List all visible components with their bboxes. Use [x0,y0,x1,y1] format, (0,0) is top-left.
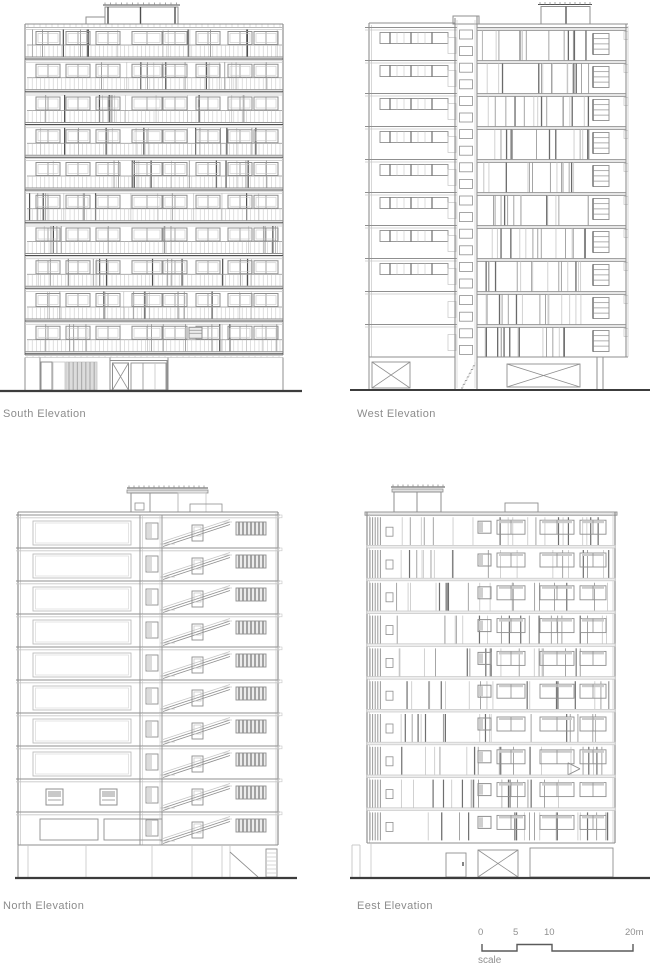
east-elevation-drawing [350,480,650,890]
scale-bar-graphic [470,942,650,956]
west-elevation-label: West Elevation [357,408,436,420]
south-elevation-label: South Elevation [3,408,86,420]
scale-tick-20: 20m [625,927,643,938]
scale-tick-0: 0 [478,927,483,938]
scale-bar: 0 5 10 20m scale [470,925,650,966]
south-elevation-drawing [0,0,310,400]
scale-caption: scale [478,955,501,966]
drawing-sheet: South Elevation West Elevation North Ele… [0,0,650,966]
east-elevation-label: Eest Elevation [357,900,433,912]
scale-tick-10: 10 [544,927,555,938]
west-elevation-drawing [350,0,650,400]
scale-tick-5: 5 [513,927,518,938]
north-elevation-label: North Elevation [3,900,84,912]
north-elevation-drawing [0,480,310,890]
